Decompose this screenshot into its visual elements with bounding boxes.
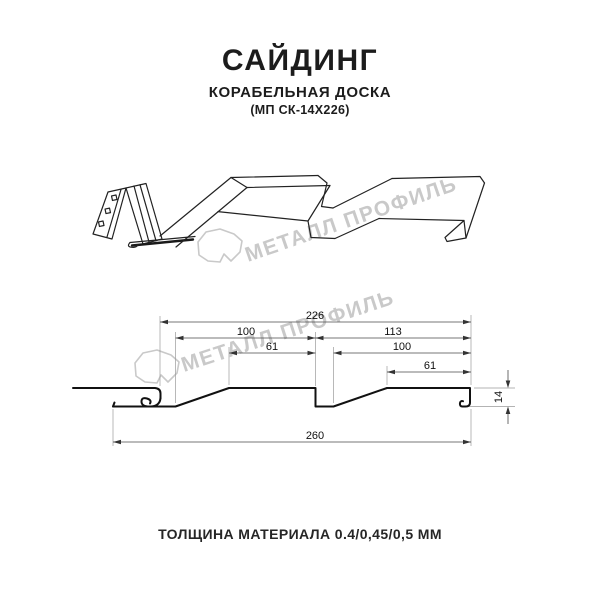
- metal-profile-logo-icon: [135, 350, 179, 383]
- dim-label-100-right: 100: [393, 341, 411, 353]
- technical-drawing-canvas: МЕТАЛЛ ПРОФИЛЬ МЕТАЛЛ ПРОФИЛЬ: [0, 0, 600, 600]
- product-drawing-page: САЙДИНГ КОРАБЕЛЬНАЯ ДОСКА (МП СК-14Х226)…: [0, 0, 600, 600]
- watermark-brand-text: МЕТАЛЛ ПРОФИЛЬ: [178, 286, 397, 377]
- dim-label-61-right: 61: [424, 360, 436, 372]
- dim-label-226: 226: [306, 310, 324, 322]
- profile-outline: [73, 388, 470, 407]
- dimension-lines: [113, 322, 508, 442]
- thickness-note: ТОЛЩИНА МАТЕРИАЛА 0.4/0,45/0,5 ММ: [0, 526, 600, 542]
- watermark-layer: МЕТАЛЛ ПРОФИЛЬ МЕТАЛЛ ПРОФИЛЬ: [135, 172, 460, 383]
- dim-label-61-left: 61: [266, 341, 278, 353]
- dim-label-113: 113: [384, 326, 402, 338]
- metal-profile-logo-icon: [198, 229, 242, 262]
- dim-label-260: 260: [306, 430, 324, 442]
- dim-label-100-left: 100: [237, 326, 255, 338]
- dim-label-14: 14: [493, 391, 505, 403]
